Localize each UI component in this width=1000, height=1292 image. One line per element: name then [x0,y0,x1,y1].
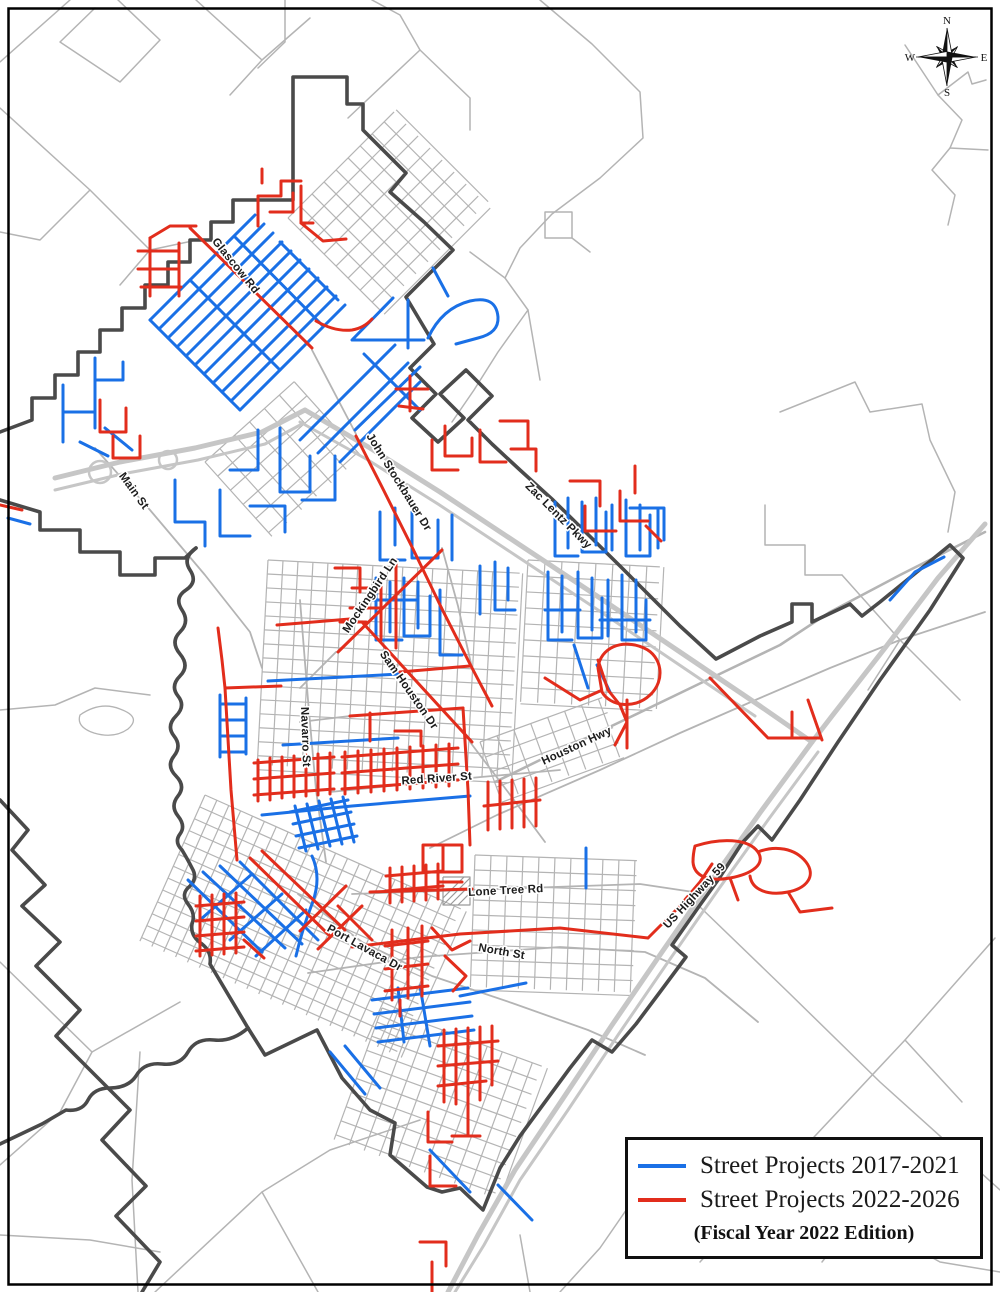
compass-east-label: E [981,52,988,64]
compass-star-icon [916,28,978,86]
street-label-main-st: Main St [116,471,151,512]
street-label-north-st: North St [477,942,525,962]
city-map: Glascow Rd Main St John Stockbauer Dr Za… [0,0,1000,1292]
legend-label-2022-2026: Street Projects 2022-2026 [700,1186,960,1214]
street-label-sam-houston-dr: Sam Houston Dr [377,649,440,732]
legend-row-2022-2026: Street Projects 2022-2026 [638,1186,970,1214]
compass-south-label: S [944,87,950,99]
legend-box: Street Projects 2017-2021 Street Project… [625,1137,983,1259]
street-label-navarro-st: Navarro St [298,707,312,768]
compass-west-label: W [905,52,916,64]
map-page: Glascow Rd Main St John Stockbauer Dr Za… [0,0,1000,1292]
street-label-houston-hwy: Houston Hwy [540,725,614,768]
legend-label-2017-2021: Street Projects 2017-2021 [700,1152,960,1180]
compass-rose: N E S W [905,15,988,99]
legend-swatch-2022-2026 [638,1198,686,1202]
street-label-red-river-st: Red River St [401,771,472,788]
legend-row-2017-2021: Street Projects 2017-2021 [638,1152,970,1180]
map-frame [9,9,992,1285]
projects-2017-2021-layer [8,215,944,1220]
street-label-lone-tree-rd: Lone Tree Rd [468,883,544,899]
legend-swatch-2017-2021 [638,1164,686,1168]
legend-footnote: (Fiscal Year 2022 Edition) [638,1222,970,1245]
compass-north-label: N [943,15,951,27]
